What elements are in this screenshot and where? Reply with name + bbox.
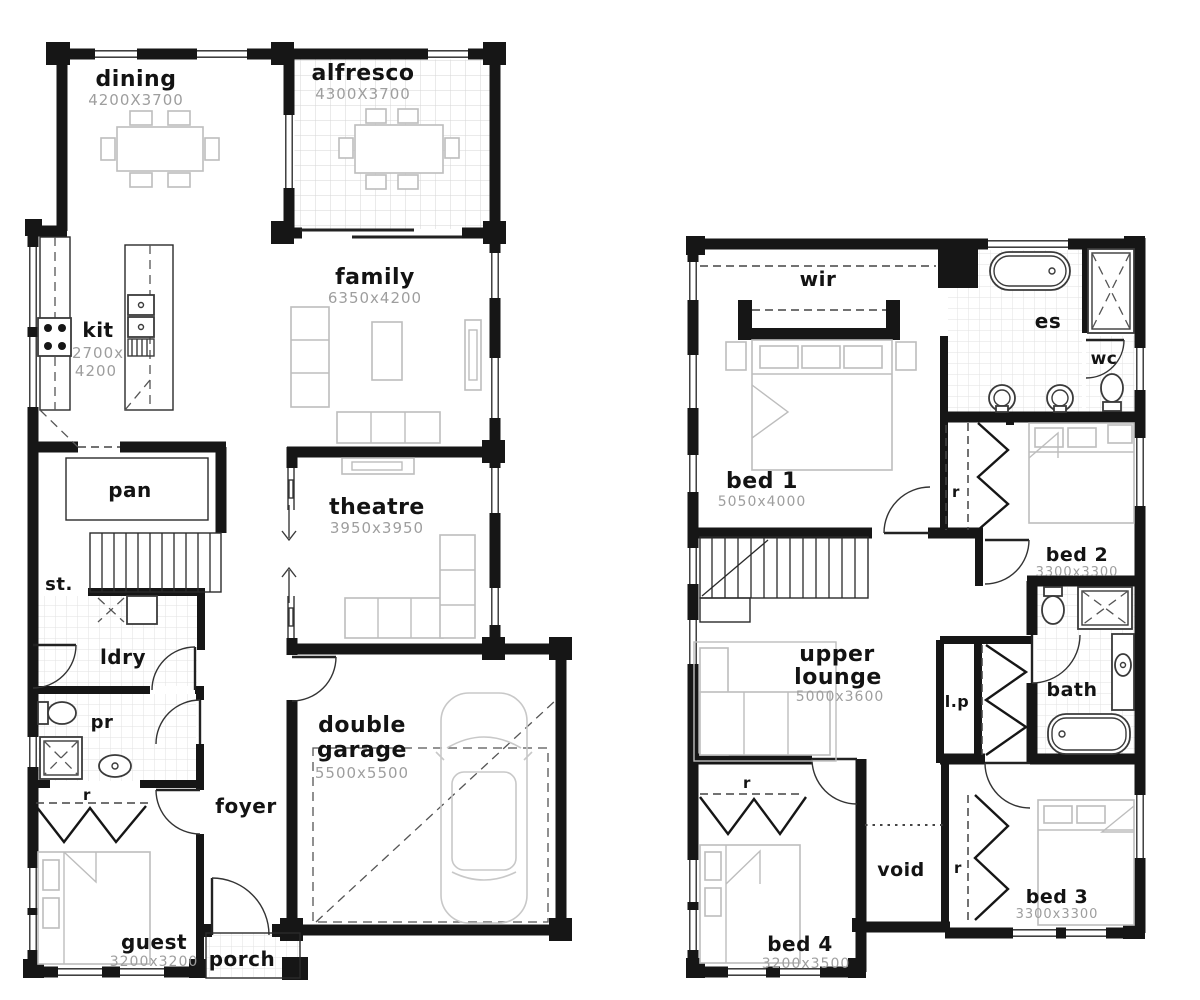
label-porch: porch (209, 947, 276, 971)
label-void: void (877, 859, 925, 881)
dims-alfresco: 4300X3700 (315, 85, 411, 103)
label-robe-guest: r (83, 786, 91, 804)
label-bed4: bed 4 (767, 932, 833, 956)
dims-bed3: 3300x3300 (1016, 907, 1099, 922)
sliding-door (300, 230, 462, 237)
label-lounge-1: upper (799, 642, 874, 667)
label-bed1: bed 1 (726, 469, 798, 494)
label-robe-bed1: r (952, 483, 960, 501)
bed1-bed (726, 340, 916, 470)
label-robe-bed4: r (743, 774, 751, 792)
ensuite-shower (1088, 249, 1134, 333)
bed1-door (884, 487, 930, 533)
label-theatre: theatre (329, 495, 425, 520)
label-dining: dining (96, 67, 177, 92)
lp-robe-column (982, 645, 1026, 755)
ground-stairs (90, 533, 221, 592)
label-foyer: foyer (215, 794, 276, 818)
label-guest: guest (121, 930, 187, 954)
guest-door (156, 790, 200, 834)
guest-robe (36, 803, 148, 842)
bed3-door (985, 763, 1030, 808)
dims-kit-2: 4200 (75, 362, 117, 380)
label-family: family (335, 265, 415, 290)
dims-family: 6350x4200 (328, 289, 422, 307)
label-lp: l.p (945, 692, 970, 711)
bed1-robe (946, 423, 1008, 530)
floor-plan-page: dining 4200X3700 alfresco 4300X3700 fami… (0, 0, 1200, 1000)
bed2-door (985, 540, 1029, 584)
label-wc: wc (1091, 349, 1118, 369)
label-st: st. (45, 574, 73, 595)
label-pr: pr (91, 712, 114, 733)
stove (38, 318, 71, 356)
bed4-door (812, 759, 857, 804)
dims-kit-1: 2700x (72, 344, 124, 362)
dims-bed1: 5050x4000 (718, 494, 807, 510)
ground-floor-plan: dining 4200X3700 alfresco 4300X3700 fami… (23, 42, 572, 980)
dims-bed4: 3200x3500 (762, 956, 851, 972)
dining-table (101, 111, 219, 187)
label-robe-bed3: r (954, 859, 962, 877)
dims-theatre: 3950x3950 (330, 519, 424, 537)
floor-plan-drawing: dining 4200X3700 alfresco 4300X3700 fami… (0, 0, 1200, 1000)
upper-floor-plan: wir es wc bed 1 5050x4000 r bed 2 3300x3… (686, 236, 1145, 978)
label-es: es (1035, 309, 1061, 333)
label-kit: kit (82, 318, 113, 342)
wc-toilet (1101, 374, 1123, 411)
bed3-robe (968, 795, 1008, 920)
hall-direction-arrows (282, 505, 296, 603)
kitchen-area (38, 237, 173, 447)
dims-lounge: 5000x3600 (796, 689, 885, 705)
label-garage-2: garage (317, 738, 407, 763)
label-lounge-2: lounge (794, 665, 882, 690)
front-door (212, 878, 269, 935)
label-wir: wir (800, 267, 837, 291)
car (436, 693, 532, 923)
kitchen-island (125, 245, 173, 410)
label-garage-1: double (318, 713, 406, 738)
dims-dining: 4200X3700 (88, 91, 184, 109)
label-bed3: bed 3 (1026, 886, 1088, 908)
label-bed2: bed 2 (1046, 544, 1108, 566)
label-bath: bath (1046, 679, 1097, 701)
upper-stairs (700, 537, 868, 622)
label-alfresco: alfresco (312, 61, 415, 86)
bed2-bed (1029, 423, 1134, 523)
dims-guest: 3200x3200 (110, 954, 199, 970)
label-pan: pan (108, 478, 152, 502)
bath-shower (1078, 587, 1132, 629)
theatre-sofa (345, 535, 475, 638)
bed4-robe (700, 794, 806, 834)
label-ldry: ldry (100, 645, 146, 669)
garage-internal-door (292, 657, 336, 701)
dims-bed2: 3300x3300 (1036, 565, 1119, 580)
dims-garage: 5500x5500 (315, 764, 409, 782)
